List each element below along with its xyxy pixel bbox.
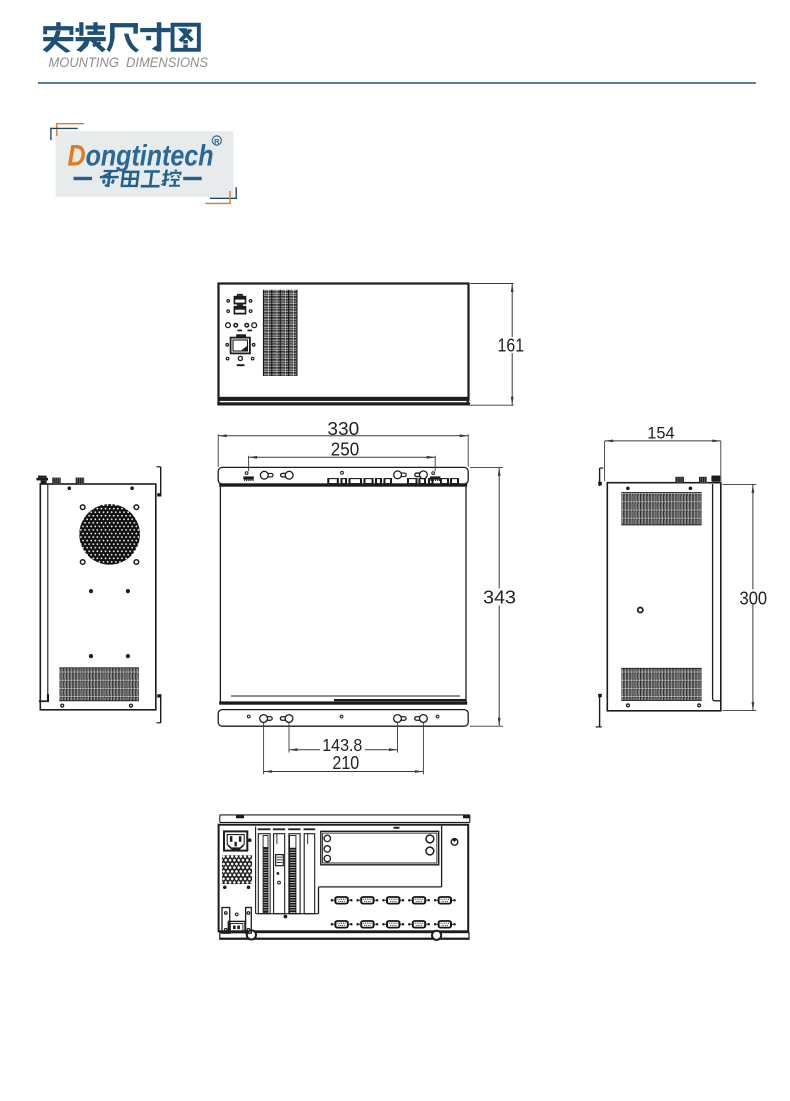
svg-text:143.8: 143.8 [322, 735, 362, 755]
svg-text:MOUNTING DIMENSIONS: MOUNTING DIMENSIONS [49, 55, 209, 70]
svg-text:250: 250 [331, 439, 359, 459]
svg-text:161: 161 [498, 336, 525, 356]
svg-text:210: 210 [332, 753, 359, 773]
svg-text:154: 154 [647, 424, 674, 443]
svg-text:343: 343 [483, 587, 516, 607]
svg-text:300: 300 [740, 588, 768, 608]
svg-text:330: 330 [327, 419, 359, 439]
svg-text:R: R [214, 137, 220, 146]
svg-text:Dongtintech: Dongtintech [68, 139, 214, 172]
